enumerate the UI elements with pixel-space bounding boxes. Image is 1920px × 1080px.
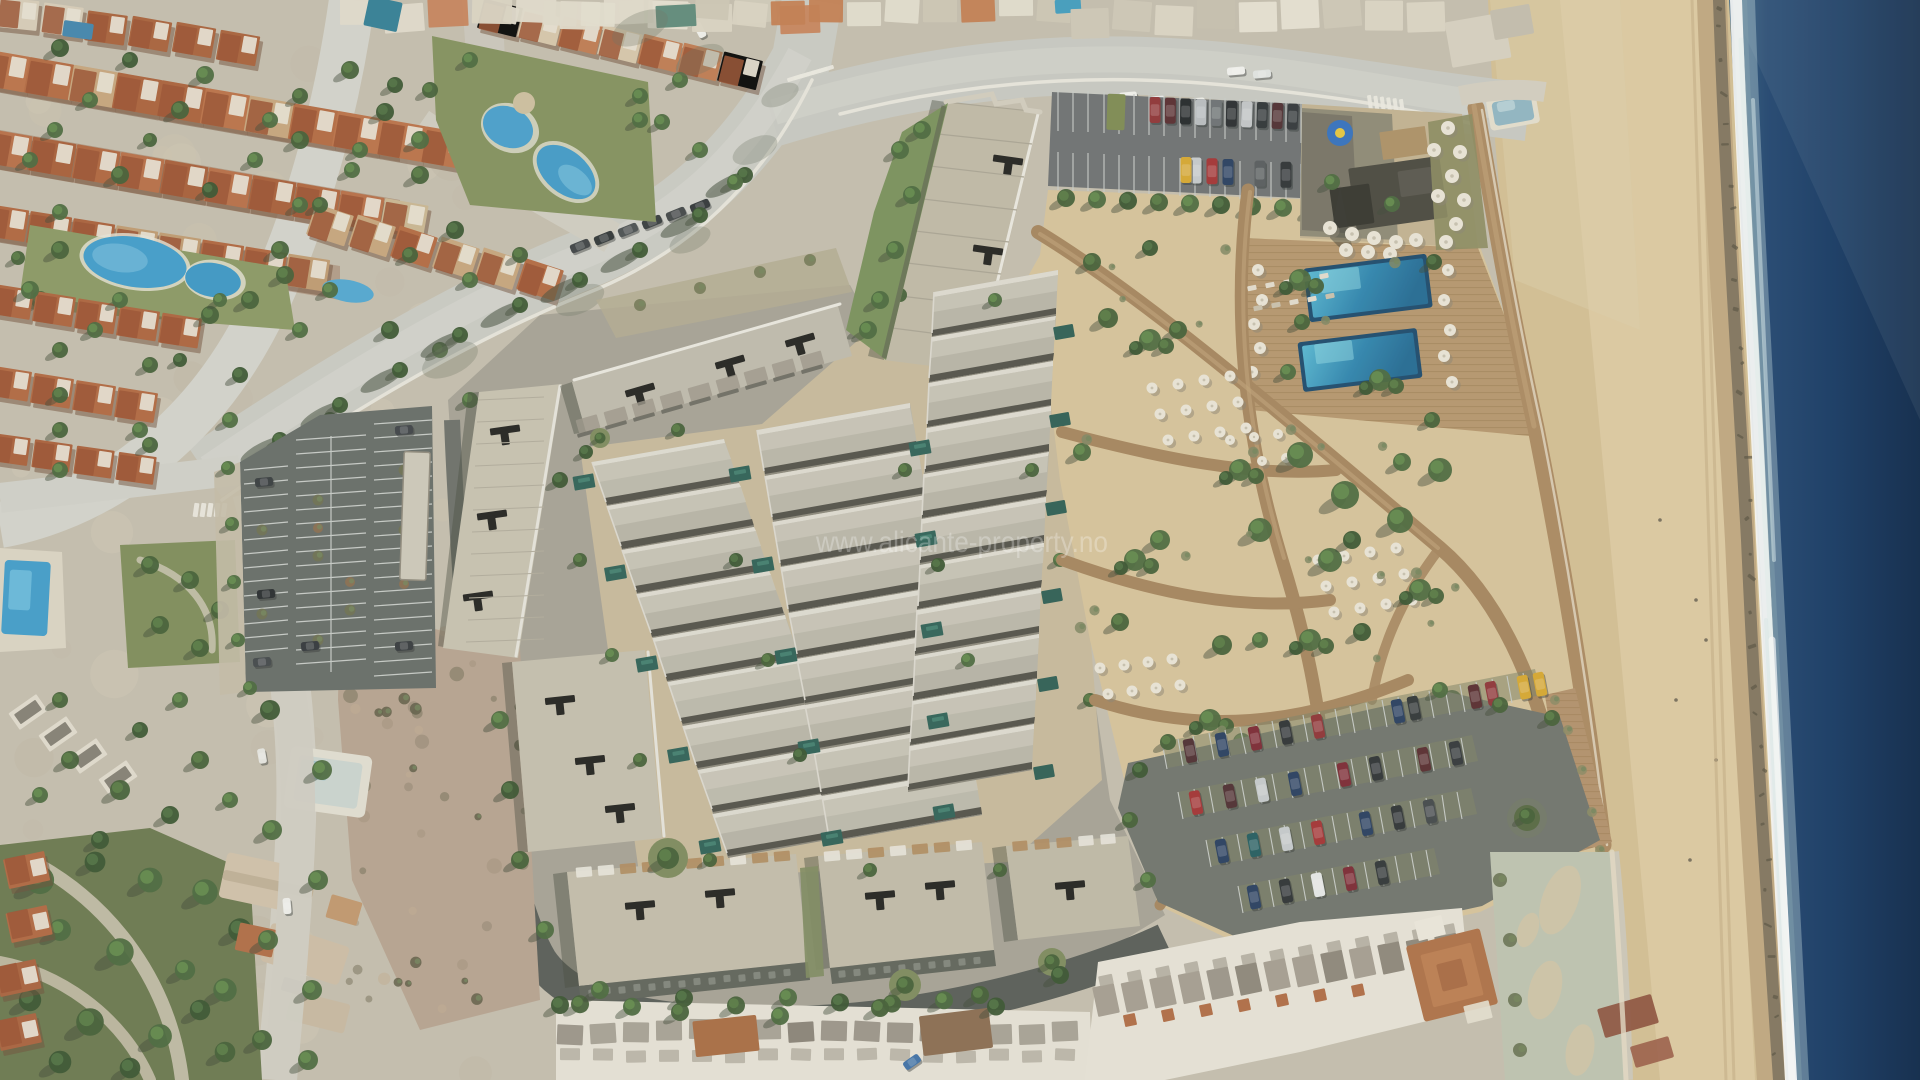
- svg-text:www.alicante-property.no: www.alicante-property.no: [815, 526, 1108, 559]
